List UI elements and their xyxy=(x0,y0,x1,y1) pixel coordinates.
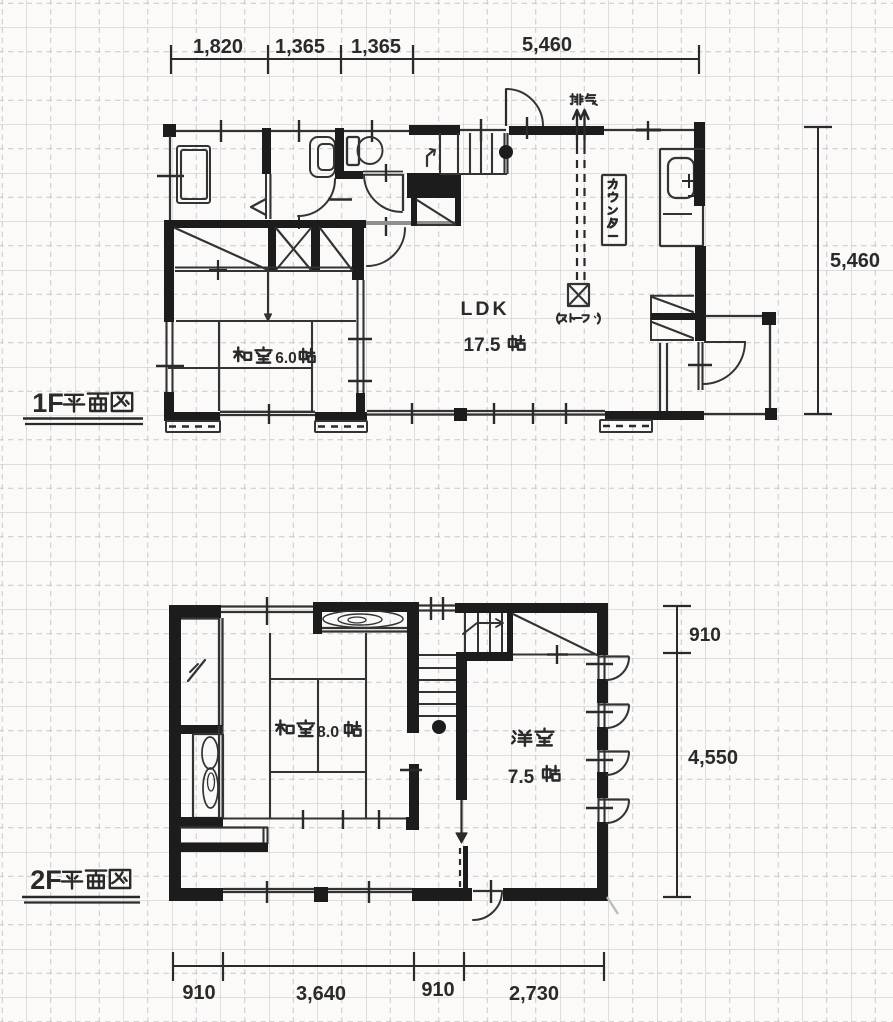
svg-text:17.5: 17.5 xyxy=(464,335,501,356)
svg-text:910: 910 xyxy=(182,982,215,1004)
svg-text:2,730: 2,730 xyxy=(509,983,559,1005)
svg-text:1,820: 1,820 xyxy=(193,36,243,58)
svg-text:1F: 1F xyxy=(32,388,64,418)
svg-text:6.0: 6.0 xyxy=(275,350,297,367)
svg-text:2F: 2F xyxy=(30,865,62,895)
svg-text:910: 910 xyxy=(689,625,721,646)
svg-text:5,460: 5,460 xyxy=(830,250,880,272)
svg-text:LDK: LDK xyxy=(460,298,509,320)
svg-text:910: 910 xyxy=(421,979,454,1001)
svg-text:4,550: 4,550 xyxy=(688,747,738,769)
svg-text:7.5: 7.5 xyxy=(508,767,535,788)
svg-text:1,365: 1,365 xyxy=(351,36,401,58)
svg-text:1,365: 1,365 xyxy=(275,36,325,58)
svg-text:8.0: 8.0 xyxy=(317,724,339,741)
svg-text:3,640: 3,640 xyxy=(296,983,346,1005)
svg-text:5,460: 5,460 xyxy=(522,34,572,56)
